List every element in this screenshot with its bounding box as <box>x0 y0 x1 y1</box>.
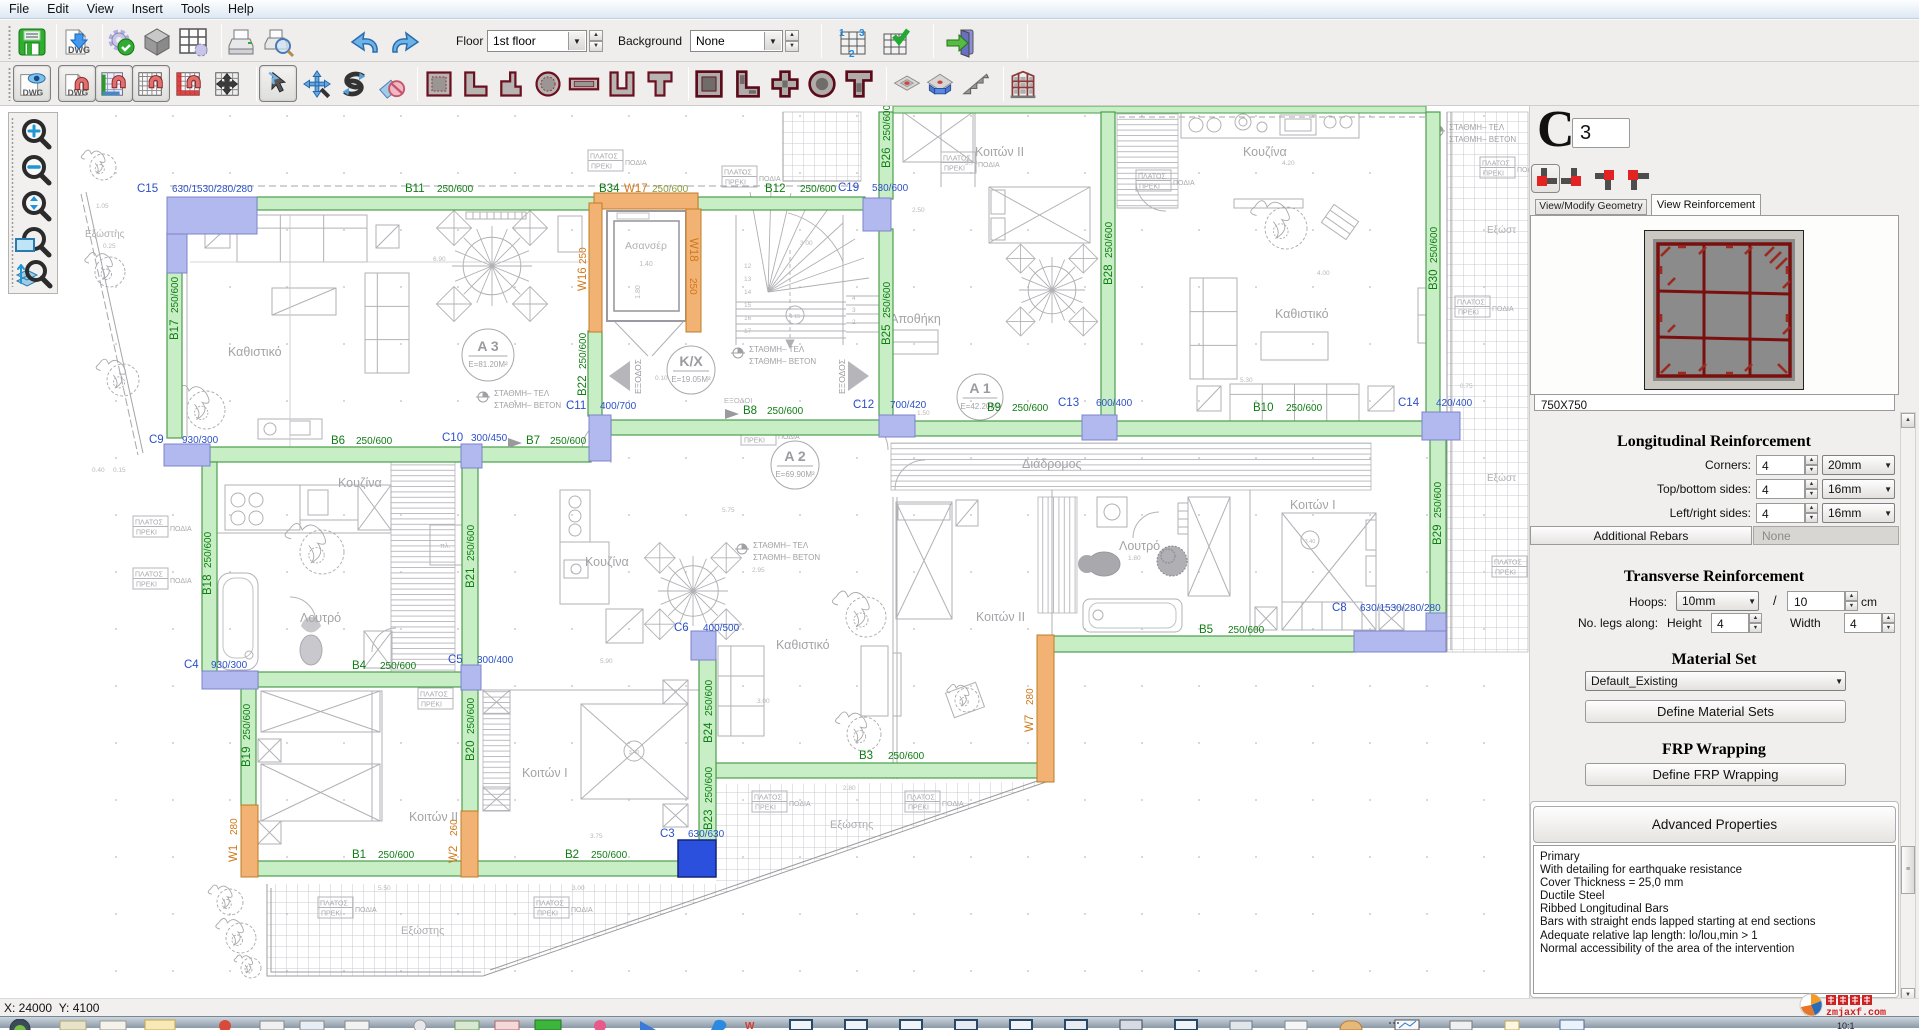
svg-text:Καθιστικό: Καθιστικό <box>228 345 282 359</box>
svg-text:ΠΡΕΚΙ: ΠΡΕΚΙ <box>321 911 342 918</box>
svg-text:Εξώστης: Εξώστης <box>830 819 873 831</box>
svg-text:B4: B4 <box>352 660 367 672</box>
svg-text:0.10: 0.10 <box>655 375 668 382</box>
svg-text:250/600: 250/600 <box>882 106 893 141</box>
svg-text:1.80: 1.80 <box>1128 555 1141 562</box>
svg-text:ΣΤΑΘΜΗ– ΤΕΛ: ΣΤΑΘΜΗ– ΤΕΛ <box>494 389 550 398</box>
svg-text:250/600: 250/600 <box>704 766 715 803</box>
svg-text:Ασανσέρ: Ασανσέρ <box>625 240 667 252</box>
svg-text:ΠΟΔΙΑ: ΠΟΔΙΑ <box>789 801 811 808</box>
svg-text:ΕΞΟΔΟΣ: ΕΞΟΔΟΣ <box>633 359 643 394</box>
svg-text:K/X: K/X <box>679 353 703 369</box>
svg-text:ΠΛΑΤΟΣ: ΠΛΑΤΟΣ <box>724 170 752 177</box>
svg-text:zmjaxf.com: zmjaxf.com <box>1826 1007 1886 1018</box>
svg-text:700/420: 700/420 <box>890 400 927 411</box>
svg-text:250/600: 250/600 <box>170 276 181 313</box>
svg-text:Καθιστικό: Καθιστικό <box>1275 307 1329 321</box>
svg-text:Εξώστης: Εξώστης <box>401 925 444 937</box>
svg-text:πλ.: πλ. <box>440 543 450 550</box>
svg-text:2: 2 <box>852 319 856 326</box>
svg-text:Αποθήκη: Αποθήκη <box>890 312 941 326</box>
svg-text:3: 3 <box>852 307 856 314</box>
svg-text:B9: B9 <box>987 402 1001 414</box>
svg-text:Κοιτών Ι: Κοιτών Ι <box>522 766 568 780</box>
svg-text:1: 1 <box>839 28 845 39</box>
svg-text:250/600: 250/600 <box>1012 403 1049 414</box>
svg-text:1 15: 1 15 <box>790 314 801 320</box>
svg-text:ΕΞΟΔΟΙ: ΕΞΟΔΟΙ <box>724 396 752 405</box>
svg-text:ΠΟΔΙΑ: ΠΟΔΙΑ <box>942 801 964 808</box>
svg-text:B10: B10 <box>1253 402 1273 414</box>
svg-text:ΠΡΕΚΙ: ΠΡΕΚΙ <box>136 582 157 589</box>
svg-text:B24: B24 <box>703 722 715 743</box>
svg-text:B11: B11 <box>405 183 425 195</box>
svg-text:B8: B8 <box>743 405 757 417</box>
svg-text:ΠΛΑΤΟΣ: ΠΛΑΤΟΣ <box>1482 161 1510 168</box>
svg-text:250: 250 <box>578 247 589 264</box>
svg-text:400/700: 400/700 <box>600 401 637 412</box>
svg-text:250/600: 250/600 <box>466 697 477 734</box>
svg-text:W: W <box>745 1021 755 1030</box>
svg-text:250/600: 250/600 <box>652 184 689 195</box>
svg-text:A 1: A 1 <box>969 380 990 396</box>
svg-text:1.50: 1.50 <box>917 410 930 417</box>
svg-text:15: 15 <box>744 302 752 309</box>
svg-text:B2: B2 <box>565 849 579 861</box>
svg-text:ΠΟΔΙΑ: ΠΟΔΙΑ <box>759 176 781 183</box>
svg-text:300/400: 300/400 <box>477 655 514 666</box>
svg-text:W16: W16 <box>577 267 589 291</box>
svg-text:C13: C13 <box>1058 397 1079 409</box>
svg-text:ΠΛΑΤΟΣ: ΠΛΑΤΟΣ <box>590 154 618 161</box>
svg-text:14: 14 <box>744 289 752 296</box>
svg-text:E=69.90M²: E=69.90M² <box>775 470 815 479</box>
svg-text:B18: B18 <box>202 575 214 595</box>
svg-text:250/600: 250/600 <box>1429 226 1440 263</box>
svg-text:13: 13 <box>744 276 752 283</box>
svg-text:17: 17 <box>744 328 752 335</box>
svg-text:ΠΟΔΙΑ: ΠΟΔΙΑ <box>571 907 593 914</box>
svg-text:B34: B34 <box>599 183 620 195</box>
svg-text:ΠΡΕΚΙ: ΠΡΕΚΙ <box>421 702 442 709</box>
svg-text:ΠΛΑΤΟΣ: ΠΛΑΤΟΣ <box>135 520 163 527</box>
svg-text:250/600: 250/600 <box>356 436 393 447</box>
svg-text:630/1530/280/280: 630/1530/280/280 <box>1360 603 1441 614</box>
svg-text:6.90: 6.90 <box>433 256 446 263</box>
svg-text:250/600: 250/600 <box>591 850 628 861</box>
svg-text:Κοιτών ΙΙ: Κοιτών ΙΙ <box>976 610 1025 624</box>
svg-text:10:1: 10:1 <box>1837 1021 1855 1030</box>
svg-text:C15: C15 <box>137 183 158 195</box>
svg-text:B5: B5 <box>1199 624 1213 636</box>
svg-text:ΠΛΑΤΟΣ: ΠΛΑΤΟΣ <box>907 795 935 802</box>
svg-text:280: 280 <box>1025 688 1036 705</box>
svg-text:B28: B28 <box>1103 265 1115 285</box>
svg-text:ΠΛΑΤΟΣ: ΠΛΑΤΟΣ <box>1138 174 1166 181</box>
svg-text:ΠΡΕΚΙ: ΠΡΕΚΙ <box>1495 570 1516 577</box>
svg-text:W17: W17 <box>624 183 648 195</box>
svg-text:B7: B7 <box>526 435 540 447</box>
svg-text:C12: C12 <box>853 399 874 411</box>
svg-text:250/600: 250/600 <box>437 184 474 195</box>
svg-text:3.00: 3.00 <box>572 885 585 892</box>
svg-text:ΠΡΕΚΙ: ΠΡΕΚΙ <box>1458 310 1479 317</box>
svg-text:3.70: 3.70 <box>965 160 978 167</box>
svg-text:B19: B19 <box>241 747 253 767</box>
svg-text:ΠΟΔΙΑ: ΠΟΔΙΑ <box>1492 306 1514 313</box>
svg-text:ΠΡΕΚΙ: ΠΡΕΚΙ <box>1139 184 1160 191</box>
svg-text:ΣΤΑΘΜΗ– ΤΕΛ: ΣΤΑΘΜΗ– ΤΕΛ <box>753 541 809 550</box>
svg-text:ΠΡΕΚΙ: ΠΡΕΚΙ <box>908 805 929 812</box>
svg-text:Καθιστικό: Καθιστικό <box>776 638 830 652</box>
svg-text:630/630: 630/630 <box>688 829 725 840</box>
svg-text:ΠΛΑΤΟΣ: ΠΛΑΤΟΣ <box>536 901 564 908</box>
svg-text:B25: B25 <box>881 325 893 345</box>
svg-text:0.15: 0.15 <box>113 467 126 474</box>
svg-text:W7: W7 <box>1024 715 1036 732</box>
svg-text:B22: B22 <box>577 376 589 396</box>
svg-text:ΠΛΑΤΟΣ: ΠΛΑΤΟΣ <box>320 901 348 908</box>
svg-text:250/600: 250/600 <box>380 661 417 672</box>
svg-text:250/600: 250/600 <box>704 679 715 716</box>
svg-text:C14: C14 <box>1398 397 1420 409</box>
svg-text:2: 2 <box>849 49 855 58</box>
svg-text:Εξώστ: Εξώστ <box>1487 472 1516 484</box>
svg-text:1.40: 1.40 <box>639 261 653 268</box>
svg-text:5.30: 5.30 <box>1240 377 1253 384</box>
svg-text:260: 260 <box>449 819 460 836</box>
svg-text:C8: C8 <box>1332 602 1347 614</box>
svg-text:ΠΛΑΤΟΣ: ΠΛΑΤΟΣ <box>754 795 782 802</box>
svg-text:W18: W18 <box>687 238 699 262</box>
svg-text:5.50: 5.50 <box>378 885 391 892</box>
svg-text:4.20: 4.20 <box>1282 160 1295 167</box>
svg-text:300/450: 300/450 <box>471 433 508 444</box>
svg-text:C3: C3 <box>660 828 675 840</box>
svg-text:600/400: 600/400 <box>1096 398 1133 409</box>
svg-text:E=81.20M²: E=81.20M² <box>468 360 508 369</box>
svg-text:3 00: 3 00 <box>800 240 813 247</box>
svg-text:DWG: DWG <box>23 87 44 97</box>
svg-text:C11: C11 <box>566 400 586 412</box>
svg-text:ΠΡΕΚΙ: ΠΡΕΚΙ <box>744 438 765 445</box>
svg-text:ΕΞΟΔΟΣ: ΕΞΟΔΟΣ <box>837 359 847 394</box>
svg-text:250/600: 250/600 <box>1228 625 1265 636</box>
svg-text:W1: W1 <box>228 845 240 862</box>
svg-text:250/600: 250/600 <box>1433 481 1444 518</box>
svg-text:3.40: 3.40 <box>629 750 640 756</box>
svg-text:B21: B21 <box>465 568 477 588</box>
svg-text:ΠΟΔΙΑ: ΠΟΔΙΑ <box>978 162 1000 169</box>
svg-text:630/1530/280/280: 630/1530/280/280 <box>172 184 253 195</box>
svg-text:ΠΛΑΤΟΣ: ΠΛΑΤΟΣ <box>1494 560 1522 567</box>
svg-text:ΠΡΕΚΙ: ΠΡΕΚΙ <box>591 164 612 171</box>
svg-text:250/600: 250/600 <box>1104 221 1115 258</box>
svg-text:250/600: 250/600 <box>1286 403 1323 414</box>
svg-text:250/600: 250/600 <box>466 524 477 561</box>
svg-text:Λουτρό: Λουτρό <box>300 611 341 625</box>
svg-text:ΠΟΔΙΑ: ΠΟΔΙΑ <box>355 907 377 914</box>
svg-text:420/400: 420/400 <box>1436 398 1473 409</box>
svg-text:ΠΟΔΙΑ: ΠΟΔΙΑ <box>170 526 192 533</box>
svg-text:C10: C10 <box>442 432 463 444</box>
svg-text:0.75: 0.75 <box>1460 383 1473 390</box>
svg-text:2.80: 2.80 <box>843 785 856 792</box>
svg-text:ΣΤΑΘΜΗ– ΤΕΛ: ΣΤΑΘΜΗ– ΤΕΛ <box>1449 123 1505 132</box>
svg-text:Εξώστης: Εξώστης <box>85 228 125 240</box>
svg-text:0.40: 0.40 <box>92 467 105 474</box>
svg-text:250/600: 250/600 <box>800 184 837 195</box>
svg-text:ΠΛΑΤΟΣ: ΠΛΑΤΟΣ <box>420 692 448 699</box>
svg-text:5.90: 5.90 <box>600 658 613 665</box>
svg-text:C6: C6 <box>674 622 689 634</box>
svg-text:B17: B17 <box>169 320 181 340</box>
svg-text:16: 16 <box>744 315 752 322</box>
svg-text:Εξώστ: Εξώστ <box>1487 224 1516 236</box>
svg-text:E=19.05M²: E=19.05M² <box>671 375 711 384</box>
svg-text:C9: C9 <box>149 434 164 446</box>
svg-text:B20: B20 <box>465 741 477 761</box>
svg-text:Διάδρομος: Διάδρομος <box>1022 457 1082 471</box>
svg-text:C4: C4 <box>184 659 199 671</box>
svg-text:B12: B12 <box>765 183 785 195</box>
svg-text:ΠΟΔΙΑ: ΠΟΔΙΑ <box>1517 167 1529 174</box>
svg-text:1.05: 1.05 <box>96 203 109 210</box>
svg-text:B3: B3 <box>859 750 873 762</box>
svg-text:280: 280 <box>229 818 240 835</box>
svg-text:12: 12 <box>744 263 752 270</box>
svg-text:5.75: 5.75 <box>722 507 735 514</box>
svg-text:Κοιτών Ι: Κοιτών Ι <box>1290 498 1336 512</box>
svg-text:ΠΡΕΚΙ: ΠΡΕΚΙ <box>944 166 965 173</box>
svg-text:930/300: 930/300 <box>211 660 248 671</box>
svg-text:2.50: 2.50 <box>912 207 925 214</box>
svg-text:250/600: 250/600 <box>578 332 589 369</box>
svg-text:250/600: 250/600 <box>888 751 925 762</box>
svg-text:250/600: 250/600 <box>550 436 587 447</box>
svg-text:3.40: 3.40 <box>1305 539 1316 545</box>
svg-text:0.25: 0.25 <box>103 243 116 250</box>
svg-text:ΣΤΑΘΜΗ– ΒΕΤΟΝ: ΣΤΑΘΜΗ– ΒΕΤΟΝ <box>494 401 561 410</box>
svg-text:3.75: 3.75 <box>590 833 603 840</box>
svg-text:W2: W2 <box>448 846 460 863</box>
svg-text:250/600: 250/600 <box>882 281 893 318</box>
svg-text:C19: C19 <box>838 182 859 194</box>
svg-text:Λουτρό: Λουτρό <box>1119 539 1160 553</box>
svg-text:B1: B1 <box>352 849 366 861</box>
svg-text:ΣΤΑΘΜΗ– ΒΕΤΟΝ: ΣΤΑΘΜΗ– ΒΕΤΟΝ <box>1449 135 1516 144</box>
svg-text:930/300: 930/300 <box>182 435 219 446</box>
svg-text:A 2: A 2 <box>784 448 805 464</box>
svg-text:B23: B23 <box>703 810 715 830</box>
svg-text:2.95: 2.95 <box>752 567 765 574</box>
svg-text:250/600: 250/600 <box>203 531 214 568</box>
svg-text:ΠΡΕΚΙ: ΠΡΕΚΙ <box>755 805 776 812</box>
svg-text:3.00: 3.00 <box>757 698 770 705</box>
svg-text:Κοιτών ΙΙ: Κοιτών ΙΙ <box>975 145 1024 159</box>
svg-text:4: 4 <box>852 295 856 302</box>
svg-text:ΣΤΑΘΜΗ– ΤΕΛ: ΣΤΑΘΜΗ– ΤΕΛ <box>749 345 805 354</box>
svg-text:B29: B29 <box>1432 525 1444 545</box>
svg-text:ΠΡΕΚΙ: ΠΡΕΚΙ <box>136 530 157 537</box>
svg-text:ΠΟΔΙΑ: ΠΟΔΙΑ <box>170 578 192 585</box>
svg-text:3: 3 <box>859 28 865 39</box>
svg-text:ΠΟΔΙΑ: ΠΟΔΙΑ <box>625 160 647 167</box>
svg-text:4.00: 4.00 <box>1317 270 1330 277</box>
svg-text:ΣΤΑΘΜΗ– ΒΕΤΟΝ: ΣΤΑΘΜΗ– ΒΕΤΟΝ <box>749 357 816 366</box>
svg-text:530/600: 530/600 <box>872 183 909 194</box>
svg-text:B6: B6 <box>331 435 345 447</box>
svg-text:ΠΡΕΚΙ: ΠΡΕΚΙ <box>1483 171 1504 178</box>
svg-text:250/600: 250/600 <box>767 406 804 417</box>
svg-text:ΠΛΑΤΟΣ: ΠΛΑΤΟΣ <box>135 572 163 579</box>
svg-text:250/600: 250/600 <box>378 850 415 861</box>
svg-text:250/600: 250/600 <box>242 703 253 740</box>
svg-text:250: 250 <box>687 278 698 295</box>
svg-text:ΠΡΕΚΙ: ΠΡΕΚΙ <box>725 180 746 187</box>
svg-text:B30: B30 <box>1428 270 1440 290</box>
svg-text:ΠΟΔΙΑ: ΠΟΔΙΑ <box>1173 180 1195 187</box>
svg-text:400/500: 400/500 <box>703 623 740 634</box>
svg-text:Κουζίνα: Κουζίνα <box>338 476 382 490</box>
svg-text:1.80: 1.80 <box>635 285 642 299</box>
svg-text:Κουζίνα: Κουζίνα <box>1243 145 1287 159</box>
svg-text:Κουζίνα: Κουζίνα <box>585 555 629 569</box>
svg-text:B26: B26 <box>881 148 893 168</box>
svg-text:ΣΤΑΘΜΗ– ΒΕΤΟΝ: ΣΤΑΘΜΗ– ΒΕΤΟΝ <box>753 553 820 562</box>
svg-text:C5: C5 <box>448 654 463 666</box>
svg-text:ΠΡΕΚΙ: ΠΡΕΚΙ <box>537 911 558 918</box>
svg-text:ΠΛΑΤΟΣ: ΠΛΑΤΟΣ <box>1457 300 1485 307</box>
svg-text:A 3: A 3 <box>477 338 498 354</box>
